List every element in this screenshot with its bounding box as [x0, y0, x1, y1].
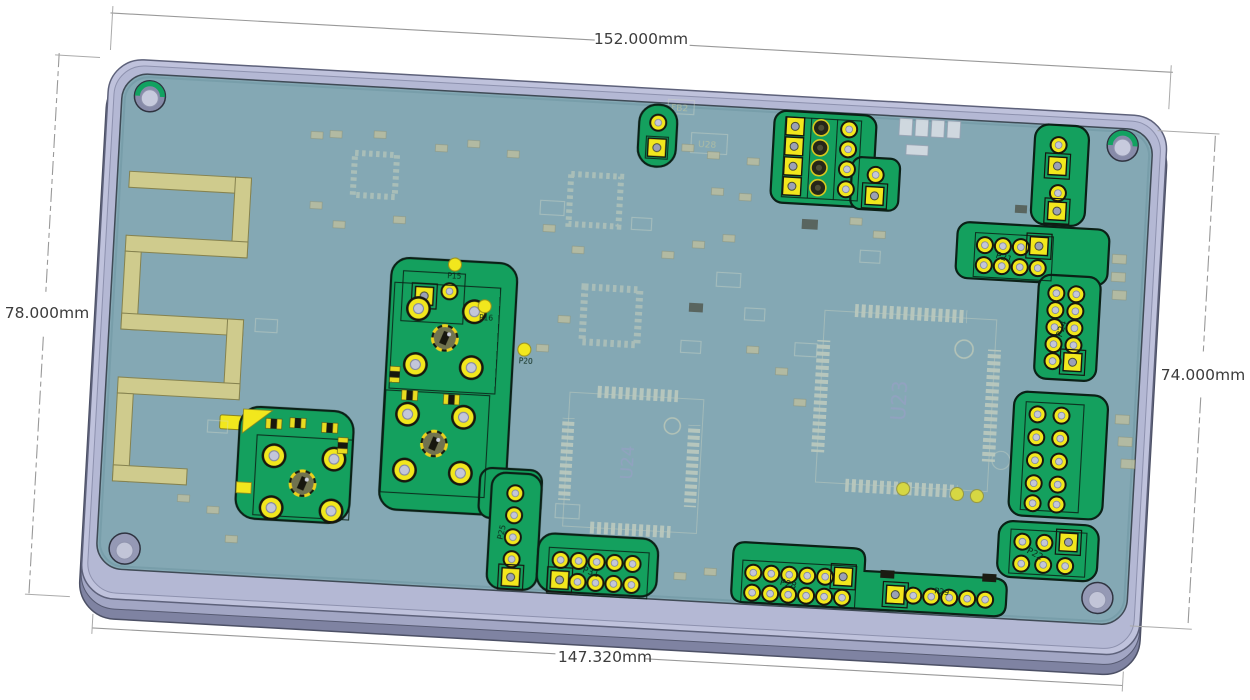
- dim-bottom-ext-left: [92, 614, 93, 634]
- label-p20: P20: [518, 356, 533, 366]
- mounting-hole-top-left: [134, 80, 167, 113]
- dim-left-ext-top: [55, 55, 100, 58]
- green-region-rf-square: [235, 406, 355, 525]
- dim-right-line-bottom: [1188, 397, 1201, 627]
- cad-viewport: U23 U24: [0, 0, 1250, 700]
- dim-left-line-bottom: [29, 337, 43, 595]
- mounting-hole-bottom-right: [1081, 582, 1114, 615]
- green-region-p31: P31: [536, 533, 659, 600]
- refdes-u23: U23: [886, 380, 912, 421]
- green-region-p22: P22: [996, 520, 1099, 581]
- label-p15: P15: [447, 271, 462, 281]
- dimension-left-label[interactable]: 78.000mm: [5, 304, 89, 322]
- dim-right-line-top: [1203, 136, 1215, 352]
- dimension-bottom-label[interactable]: 147.320mm: [558, 648, 652, 666]
- dimension-top-label[interactable]: 152.000mm: [594, 30, 688, 48]
- green-region-right-header: [1008, 391, 1109, 520]
- dim-top-line-left: [111, 13, 595, 40]
- cad-canvas: U23 U24: [0, 0, 1250, 700]
- test-dot-p20: [518, 343, 532, 357]
- dim-right-ext-top: [1158, 131, 1220, 134]
- refdes-u28: U28: [698, 140, 717, 151]
- dim-bottom-ext-right: [1122, 672, 1123, 692]
- green-region-corner-strip: [1030, 124, 1089, 227]
- mounting-hole-bottom-left: [108, 532, 141, 565]
- dim-left-line-top: [46, 53, 59, 293]
- dimension-right-label[interactable]: 74.000mm: [1161, 366, 1245, 384]
- board-assembly[interactable]: U23 U24: [23, 3, 1223, 695]
- dim-top-line-right: [690, 45, 1173, 72]
- label-p16: P16: [479, 313, 494, 323]
- refdes-u24: U24: [617, 445, 639, 480]
- dim-left-ext-bottom: [25, 594, 70, 597]
- mounting-hole-top-right: [1106, 129, 1139, 162]
- green-region-top-pill: [637, 104, 678, 168]
